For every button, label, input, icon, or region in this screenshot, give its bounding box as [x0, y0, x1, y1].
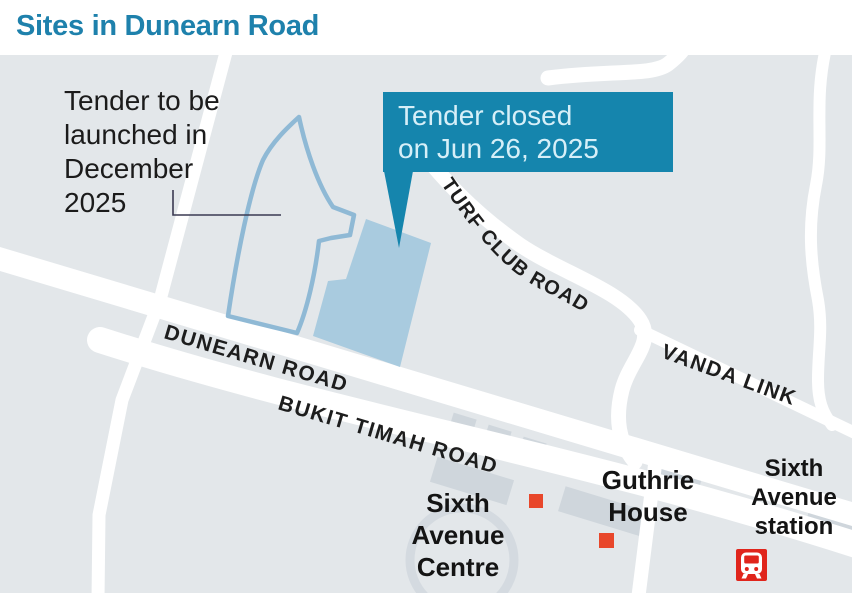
mrt-train-light [745, 567, 749, 571]
place-line: Avenue [738, 483, 850, 512]
callout-line: Tender closed [398, 99, 673, 132]
building-marker-guthrie-house [599, 533, 614, 548]
mrt-station-icon [736, 549, 767, 581]
place-line: Avenue [393, 519, 523, 551]
annotation-line: December [64, 152, 220, 186]
page-title: Sites in Dunearn Road [16, 10, 319, 43]
callout-pointer-tail [384, 171, 413, 248]
place-line: Guthrie [583, 464, 713, 496]
mrt-train-window [744, 556, 759, 564]
callout-line: on Jun 26, 2025 [398, 132, 673, 165]
infographic-page: Sites in Dunearn Road [0, 0, 852, 593]
annotation-closed-tender-callout: Tender closed on Jun 26, 2025 [383, 92, 673, 172]
place-line: Sixth [393, 487, 523, 519]
annotation-upcoming-tender: Tender to be launched in December 2025 [64, 84, 220, 220]
place-label-sixth-avenue-station: Sixth Avenue station [738, 454, 850, 541]
building-marker-sixth-avenue-centre [529, 494, 543, 508]
place-line: station [738, 512, 850, 541]
place-line: Centre [393, 551, 523, 583]
place-line: House [583, 496, 713, 528]
annotation-line: 2025 [64, 186, 220, 220]
place-label-guthrie-house: Guthrie House [583, 464, 713, 528]
place-label-sixth-avenue-centre: Sixth Avenue Centre [393, 487, 523, 583]
place-line: Sixth [738, 454, 850, 483]
mrt-train-light [754, 567, 758, 571]
map-area: DUNEARN ROAD BUKIT TIMAH ROAD VANDA LINK… [0, 55, 852, 593]
annotation-line: Tender to be [64, 84, 220, 118]
annotation-line: launched in [64, 118, 220, 152]
